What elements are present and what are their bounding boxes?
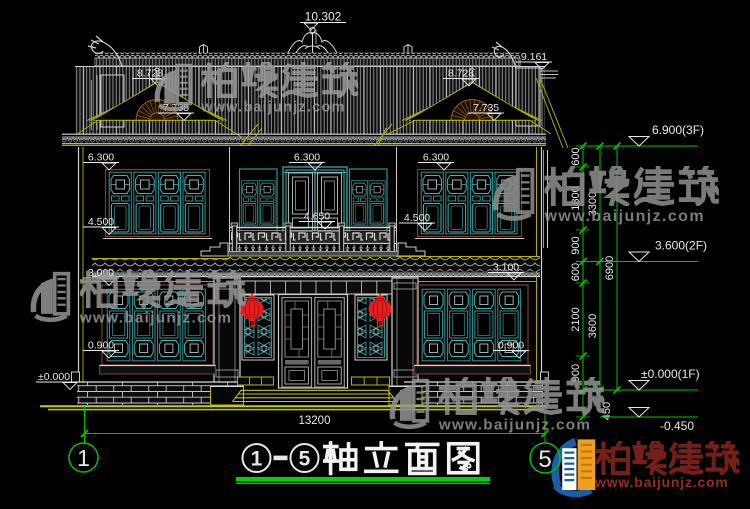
svg-text:3.600(2F): 3.600(2F) <box>655 239 707 253</box>
svg-text:1: 1 <box>77 445 90 471</box>
svg-text:9.161: 9.161 <box>521 51 547 63</box>
svg-text:±0.000: ±0.000 <box>38 371 70 383</box>
svg-text:10.302: 10.302 <box>305 10 342 24</box>
svg-text:6.900(3F): 6.900(3F) <box>652 123 704 137</box>
svg-text:8.728: 8.728 <box>137 68 163 80</box>
svg-text:900: 900 <box>570 236 582 254</box>
svg-text:www.baijunjz.com: www.baijunjz.com <box>594 474 729 490</box>
svg-text:www.baijunjz.com: www.baijunjz.com <box>544 208 706 225</box>
svg-text:0.900: 0.900 <box>88 340 114 352</box>
svg-text:www.baijunjz.com: www.baijunjz.com <box>79 309 232 326</box>
svg-text:5: 5 <box>299 448 311 471</box>
svg-text:8.728: 8.728 <box>448 68 474 80</box>
svg-text:5: 5 <box>538 446 551 473</box>
svg-text:4.500: 4.500 <box>88 216 114 228</box>
svg-text:0.900: 0.900 <box>498 340 524 352</box>
svg-text:±0.000(1F): ±0.000(1F) <box>641 367 700 381</box>
svg-text:4.500: 4.500 <box>404 212 430 224</box>
svg-text:6900: 6900 <box>604 256 616 280</box>
svg-text:1: 1 <box>251 448 263 471</box>
svg-text:www.baijunjz.com: www.baijunjz.com <box>438 416 591 433</box>
svg-text:-0.450: -0.450 <box>660 419 694 433</box>
svg-text:3.100: 3.100 <box>493 262 519 274</box>
svg-text:2100: 2100 <box>570 307 582 331</box>
svg-text:13200: 13200 <box>299 415 331 427</box>
svg-text:6.300: 6.300 <box>294 152 320 164</box>
svg-text:6.300: 6.300 <box>88 152 114 164</box>
svg-text:600: 600 <box>570 263 582 281</box>
svg-text:7.735: 7.735 <box>473 102 499 114</box>
svg-text:3600: 3600 <box>587 314 599 338</box>
svg-text:6.300: 6.300 <box>423 152 449 164</box>
svg-text:www.baijunjz.com: www.baijunjz.com <box>200 100 345 116</box>
svg-text:4.650: 4.650 <box>304 211 330 223</box>
svg-text:600: 600 <box>570 147 582 165</box>
